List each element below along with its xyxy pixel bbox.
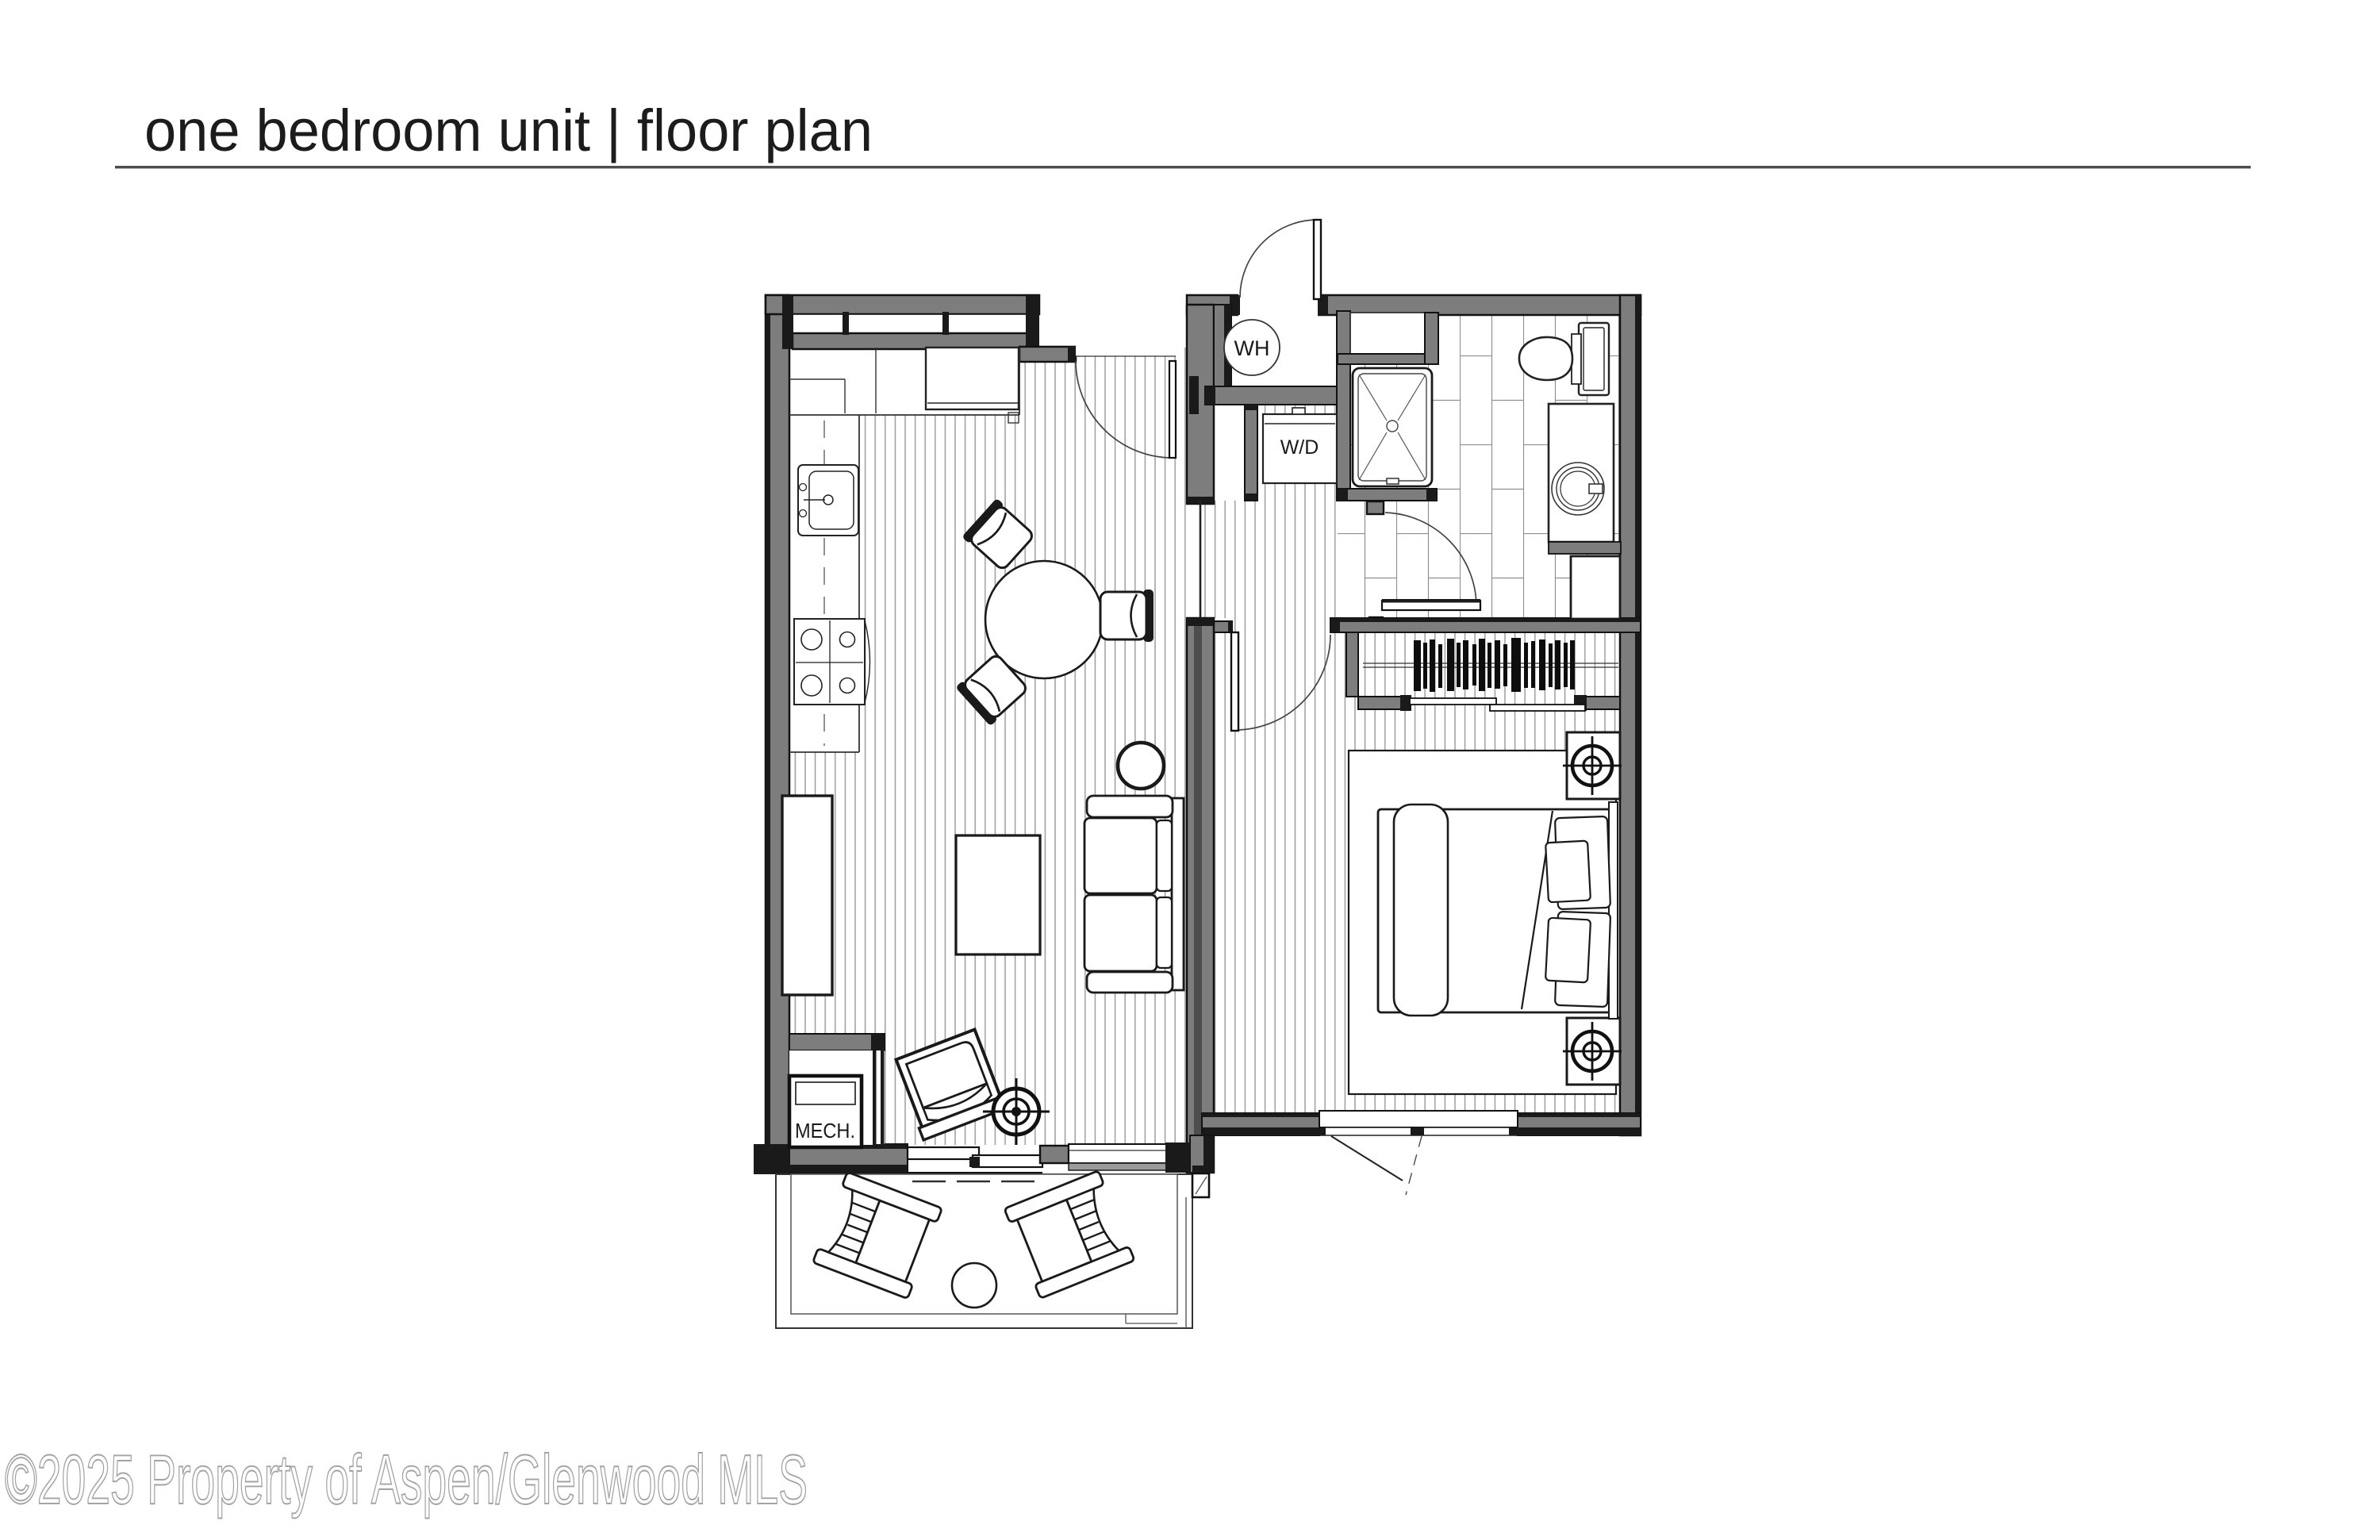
svg-text:WH: WH <box>1234 336 1270 360</box>
svg-text:W/D: W/D <box>1280 436 1319 459</box>
svg-text:MECH.: MECH. <box>795 1119 855 1143</box>
svg-text:©2025 Property of Aspen/Glenwo: ©2025 Property of Aspen/Glenwood MLS <box>5 1440 808 1519</box>
svg-text:one bedroom unit | floor plan: one bedroom unit | floor plan <box>144 98 873 163</box>
